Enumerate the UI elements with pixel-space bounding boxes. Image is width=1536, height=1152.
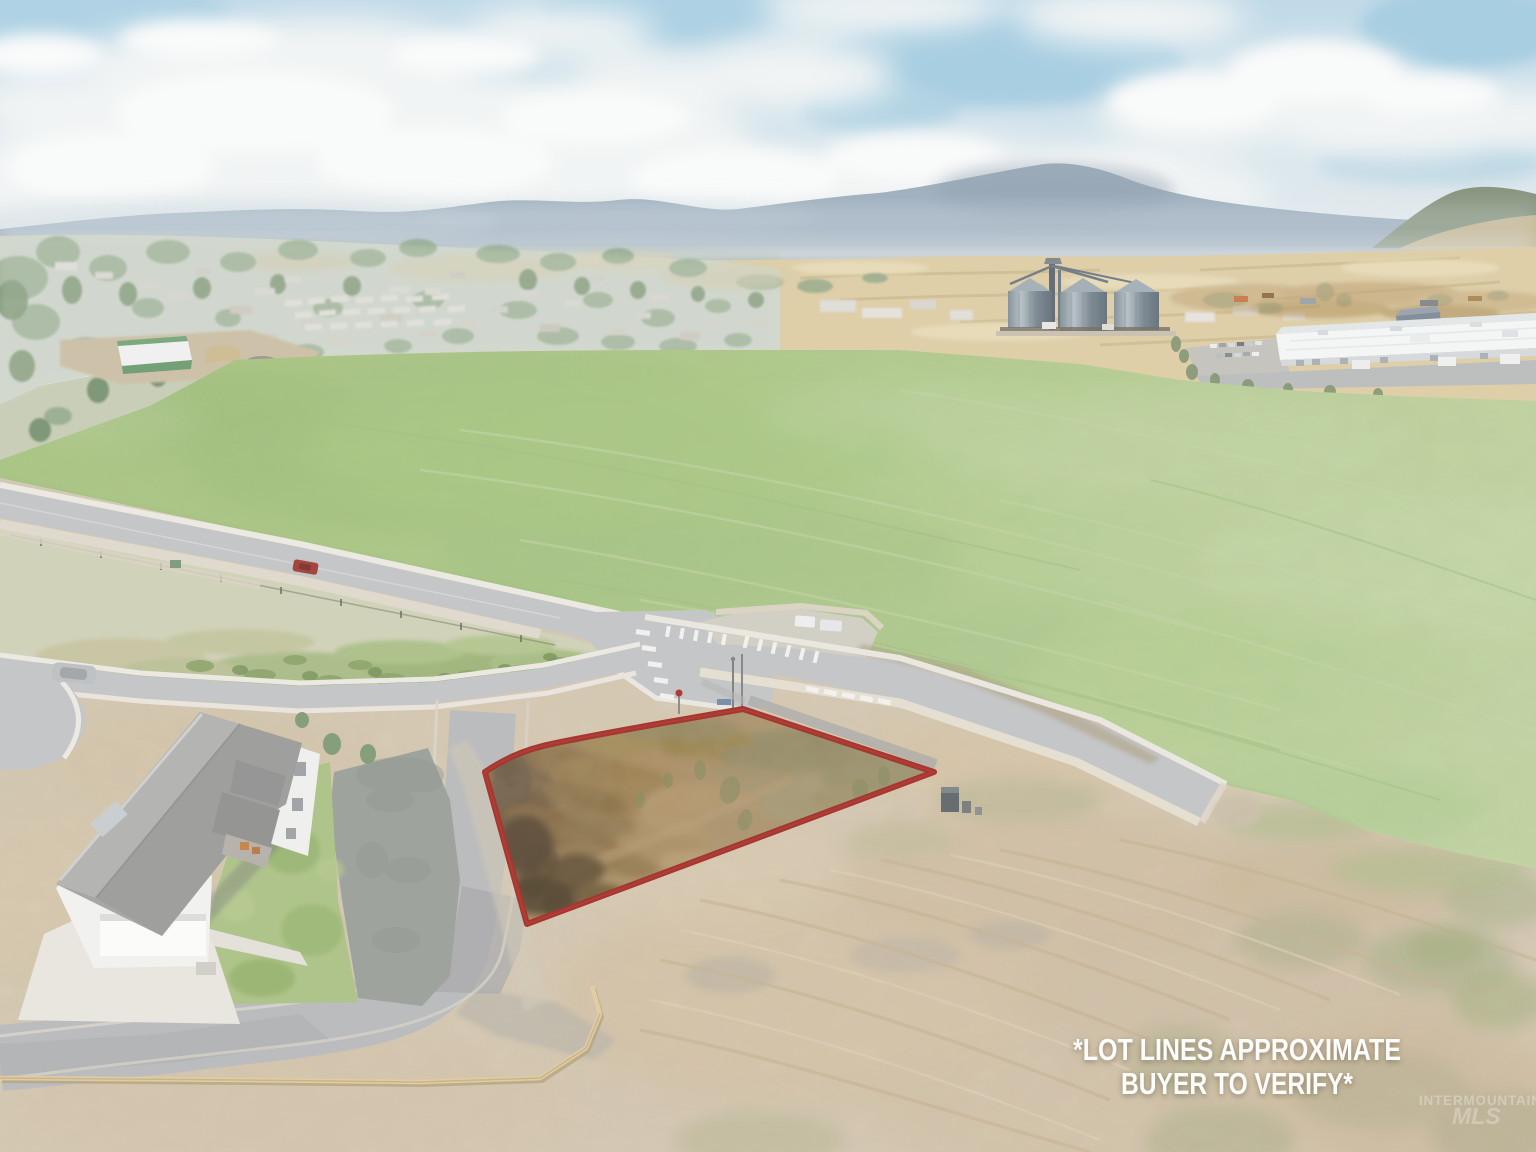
svg-text:BUYER TO VERIFY*: BUYER TO VERIFY*: [1121, 1066, 1354, 1101]
svg-text:*LOT LINES APPROXIMATE: *LOT LINES APPROXIMATE: [1073, 1032, 1401, 1067]
svg-text:MLS: MLS: [1452, 1103, 1501, 1129]
